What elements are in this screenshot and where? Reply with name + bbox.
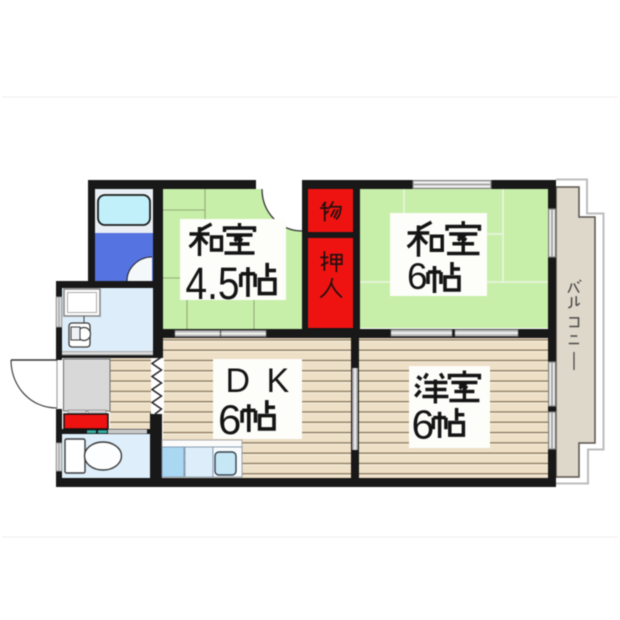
svg-text:4.5: 4.5 — [186, 258, 240, 309]
svg-text:6: 6 — [407, 256, 428, 297]
svg-text:6: 6 — [218, 396, 241, 443]
svg-text:6: 6 — [412, 402, 435, 448]
